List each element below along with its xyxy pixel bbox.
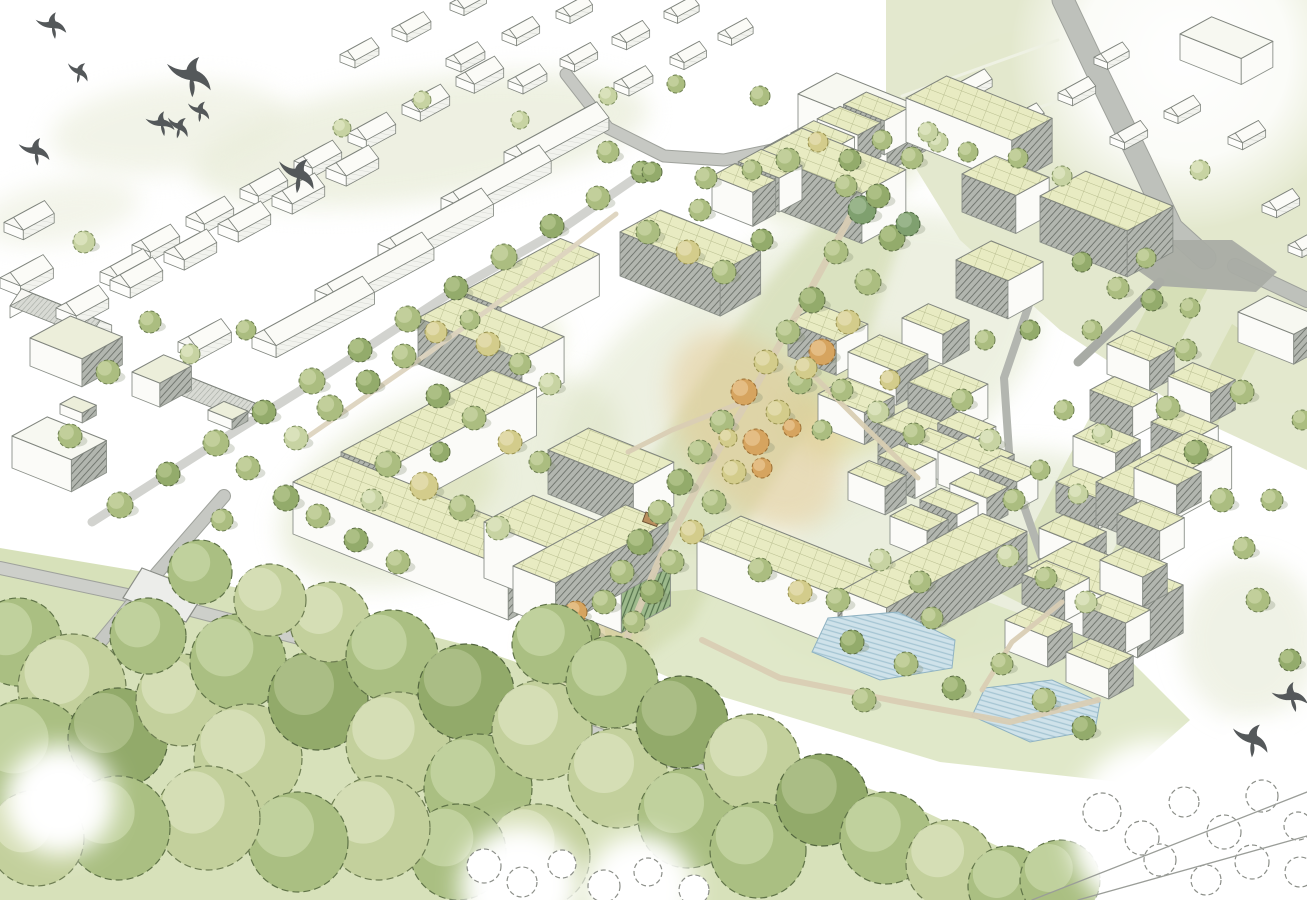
tree-highlight — [895, 653, 909, 667]
tree-highlight — [911, 824, 964, 877]
tree-highlight — [498, 685, 558, 745]
tree-highlight — [749, 559, 763, 573]
tree-highlight — [426, 322, 439, 335]
tree-highlight — [181, 345, 193, 357]
tree-highlight — [1073, 717, 1087, 731]
tree-highlight — [910, 572, 923, 585]
tree-highlight — [733, 380, 749, 396]
tree-highlight — [377, 452, 393, 468]
tree-highlight — [681, 521, 695, 535]
tree-highlight — [1021, 321, 1033, 333]
tree-highlight — [362, 490, 375, 503]
tree-highlight — [873, 131, 885, 143]
tree-highlight — [813, 421, 825, 433]
tree-highlight — [713, 261, 727, 275]
tree-highlight — [1137, 249, 1149, 261]
tree-highlight — [998, 546, 1011, 559]
tree-highlight — [703, 491, 717, 505]
tree-highlight — [593, 591, 607, 605]
bush-outline — [1191, 865, 1221, 895]
tree-highlight — [642, 681, 697, 736]
tree-highlight — [512, 112, 523, 123]
tree-highlight — [352, 697, 414, 759]
swift-bird — [18, 137, 49, 166]
tree-highlight — [745, 430, 761, 446]
tree-highlight — [493, 245, 509, 261]
tree-highlight — [841, 631, 855, 645]
tree-highlight — [881, 226, 897, 242]
tree-highlight — [1073, 253, 1085, 265]
tree-highlight — [943, 677, 957, 691]
tree-highlight — [1185, 441, 1199, 455]
tree-highlight — [357, 371, 371, 385]
pitched-house — [392, 12, 431, 42]
tree-highlight — [753, 459, 765, 471]
pitched-house — [450, 0, 486, 16]
tree-highlight — [74, 693, 134, 753]
tree-highlight — [301, 369, 317, 385]
white-fade — [5, 745, 115, 855]
flat-roof-building — [60, 396, 96, 423]
tree-highlight — [461, 311, 473, 323]
tree-highlight — [352, 615, 407, 670]
tree-highlight — [285, 427, 299, 441]
tree-highlight — [669, 470, 685, 486]
tree-highlight — [162, 771, 224, 833]
tree-highlight — [959, 143, 971, 155]
tree-highlight — [751, 87, 763, 99]
tree-highlight — [1053, 167, 1065, 179]
tree-highlight — [1004, 490, 1017, 503]
tree-highlight — [641, 581, 655, 595]
bush-outline — [1083, 793, 1121, 831]
tree-highlight — [716, 807, 774, 865]
tree-highlight — [643, 163, 655, 175]
tree-highlight — [881, 371, 893, 383]
tree-highlight — [1009, 149, 1021, 161]
bush-outline — [1169, 787, 1199, 817]
tree-highlight — [109, 493, 125, 509]
tree-highlight — [274, 655, 334, 715]
tree-highlight — [629, 530, 645, 546]
bush-outline — [467, 849, 501, 883]
tree-highlight — [540, 374, 553, 387]
tree-highlight — [677, 241, 691, 255]
tree-highlight — [1293, 411, 1305, 423]
tree-highlight — [723, 461, 737, 475]
tree-highlight — [238, 568, 281, 611]
tree-highlight — [24, 639, 89, 704]
tree-highlight — [157, 463, 171, 477]
pitched-house — [502, 16, 540, 45]
tree-highlight — [205, 431, 221, 447]
tree-highlight — [840, 150, 853, 163]
tree-highlight — [836, 176, 849, 189]
tree-highlight — [752, 230, 765, 243]
tree-highlight — [1157, 397, 1171, 411]
tree-highlight — [477, 333, 491, 347]
tree-highlight — [74, 232, 87, 245]
tree-highlight — [897, 213, 911, 227]
tree-highlight — [572, 641, 627, 696]
tree-highlight — [600, 88, 611, 99]
tree-highlight — [649, 501, 663, 515]
tree-highlight — [801, 288, 817, 304]
tree-highlight — [755, 351, 769, 365]
tree-highlight — [237, 321, 249, 333]
tree-highlight — [499, 431, 513, 445]
tree-highlight — [661, 551, 675, 565]
tree-highlight — [253, 401, 267, 415]
tree-highlight — [115, 602, 161, 648]
swift-bird — [64, 60, 91, 85]
tree-highlight — [445, 277, 459, 291]
tree-highlight — [870, 550, 883, 563]
tree-highlight — [1142, 290, 1155, 303]
tree-highlight — [767, 401, 781, 415]
tree-highlight — [711, 411, 725, 425]
tree-highlight — [850, 197, 867, 214]
pitched-house — [614, 66, 653, 96]
tree-highlight — [1076, 592, 1089, 605]
pitched-house — [340, 38, 379, 68]
tree-highlight — [1036, 568, 1049, 581]
tree-highlight — [196, 619, 254, 677]
masterplan-rendering — [0, 0, 1307, 900]
tree-highlight — [414, 92, 425, 103]
tree-highlight — [587, 187, 601, 201]
tree-highlight — [510, 354, 523, 367]
tree-highlight — [1031, 461, 1043, 473]
tree-highlight — [976, 331, 988, 343]
tree-highlight — [796, 358, 809, 371]
tree-highlight — [784, 420, 795, 431]
tree-highlight — [1176, 340, 1189, 353]
tree-highlight — [720, 430, 731, 441]
tree-highlight — [644, 773, 704, 833]
tree-highlight — [789, 581, 803, 595]
tree-highlight — [809, 133, 821, 145]
tree-highlight — [922, 608, 935, 621]
tree-highlight — [530, 452, 543, 465]
bush-outline — [679, 875, 709, 900]
flat-roof-building — [132, 355, 191, 407]
tree-highlight — [902, 148, 915, 161]
tree-highlight — [574, 733, 634, 793]
tree-highlight — [1247, 589, 1261, 603]
tree-highlight — [1083, 321, 1095, 333]
tree-highlight — [517, 608, 565, 656]
tree-highlight — [397, 307, 413, 323]
tree-highlight — [412, 473, 429, 490]
tree-highlight — [1025, 844, 1073, 892]
tree-highlight — [393, 345, 407, 359]
tree-highlight — [451, 496, 467, 512]
tree-highlight — [1211, 489, 1225, 503]
tree-highlight — [541, 215, 555, 229]
pitched-house — [560, 42, 598, 71]
tree-highlight — [1231, 381, 1245, 395]
tree-highlight — [777, 321, 791, 335]
tree-highlight — [387, 551, 401, 565]
pitched-house — [612, 20, 650, 49]
tree-highlight — [427, 385, 441, 399]
tree-highlight — [624, 612, 637, 625]
flat-roof-building — [12, 417, 107, 492]
tree-highlight — [919, 123, 931, 135]
tree-highlight — [1055, 401, 1067, 413]
pitched-house — [0, 255, 53, 297]
tree-highlight — [349, 339, 363, 353]
tree-highlight — [334, 120, 345, 131]
tree-highlight — [782, 759, 837, 814]
tree-highlight — [424, 649, 482, 707]
bush-outline — [1235, 845, 1269, 879]
tree-highlight — [237, 457, 251, 471]
tree-highlight — [487, 517, 501, 531]
tree-highlight — [431, 443, 443, 455]
tree-highlight — [853, 689, 867, 703]
tree-highlight — [980, 430, 993, 443]
tree-highlight — [140, 312, 153, 325]
tree-highlight — [743, 161, 755, 173]
tree-highlight — [710, 719, 768, 777]
pitched-house — [670, 41, 706, 69]
tree-highlight — [668, 76, 679, 87]
tree-highlight — [59, 425, 73, 439]
tree-highlight — [867, 185, 881, 199]
tree-highlight — [952, 390, 965, 403]
bush-outline — [507, 867, 537, 897]
watercolor-wash — [0, 169, 144, 256]
tree-highlight — [1093, 425, 1105, 437]
tree-highlight — [172, 543, 210, 581]
tree-highlight — [689, 441, 703, 455]
tree-highlight — [1262, 490, 1275, 503]
aerial-rendering-canvas — [0, 0, 1307, 900]
bush-outline — [1144, 844, 1176, 876]
tree-highlight — [827, 589, 841, 603]
tree-highlight — [254, 797, 314, 857]
swift-bird — [35, 11, 67, 41]
tree-highlight — [637, 221, 651, 235]
pitched-house — [664, 0, 699, 23]
tree-highlight — [992, 654, 1005, 667]
tree-highlight — [1069, 485, 1081, 497]
tree-highlight — [973, 850, 1021, 898]
tree-highlight — [846, 797, 901, 852]
pitched-house — [718, 18, 753, 45]
tree-highlight — [430, 739, 495, 804]
tree-highlight — [200, 709, 265, 774]
tree-highlight — [696, 168, 709, 181]
tree-highlight — [1280, 650, 1293, 663]
tree-highlight — [212, 510, 225, 523]
tree-highlight — [857, 270, 873, 286]
tree-highlight — [611, 561, 625, 575]
tree-highlight — [832, 380, 845, 393]
bush-outline — [548, 850, 576, 878]
tree-highlight — [345, 529, 359, 543]
tree-highlight — [307, 505, 321, 519]
tree-highlight — [837, 311, 851, 325]
tree-highlight — [97, 361, 111, 375]
tree-highlight — [1108, 278, 1121, 291]
tree-highlight — [463, 407, 477, 421]
tree-highlight — [904, 424, 917, 437]
bush-outline — [1246, 780, 1278, 812]
tree-highlight — [1033, 689, 1047, 703]
tree-highlight — [1234, 538, 1247, 551]
tree-highlight — [811, 340, 827, 356]
tree-highlight — [1181, 299, 1193, 311]
tree-highlight — [275, 486, 291, 502]
tree-highlight — [319, 396, 335, 412]
tree-highlight — [868, 402, 881, 415]
bush-outline — [634, 858, 662, 886]
pitched-house — [556, 0, 592, 24]
tree-highlight — [777, 149, 791, 163]
tree-highlight — [690, 200, 703, 213]
tree-highlight — [598, 142, 611, 155]
tree-highlight — [825, 241, 839, 255]
tree-highlight — [1191, 161, 1203, 173]
